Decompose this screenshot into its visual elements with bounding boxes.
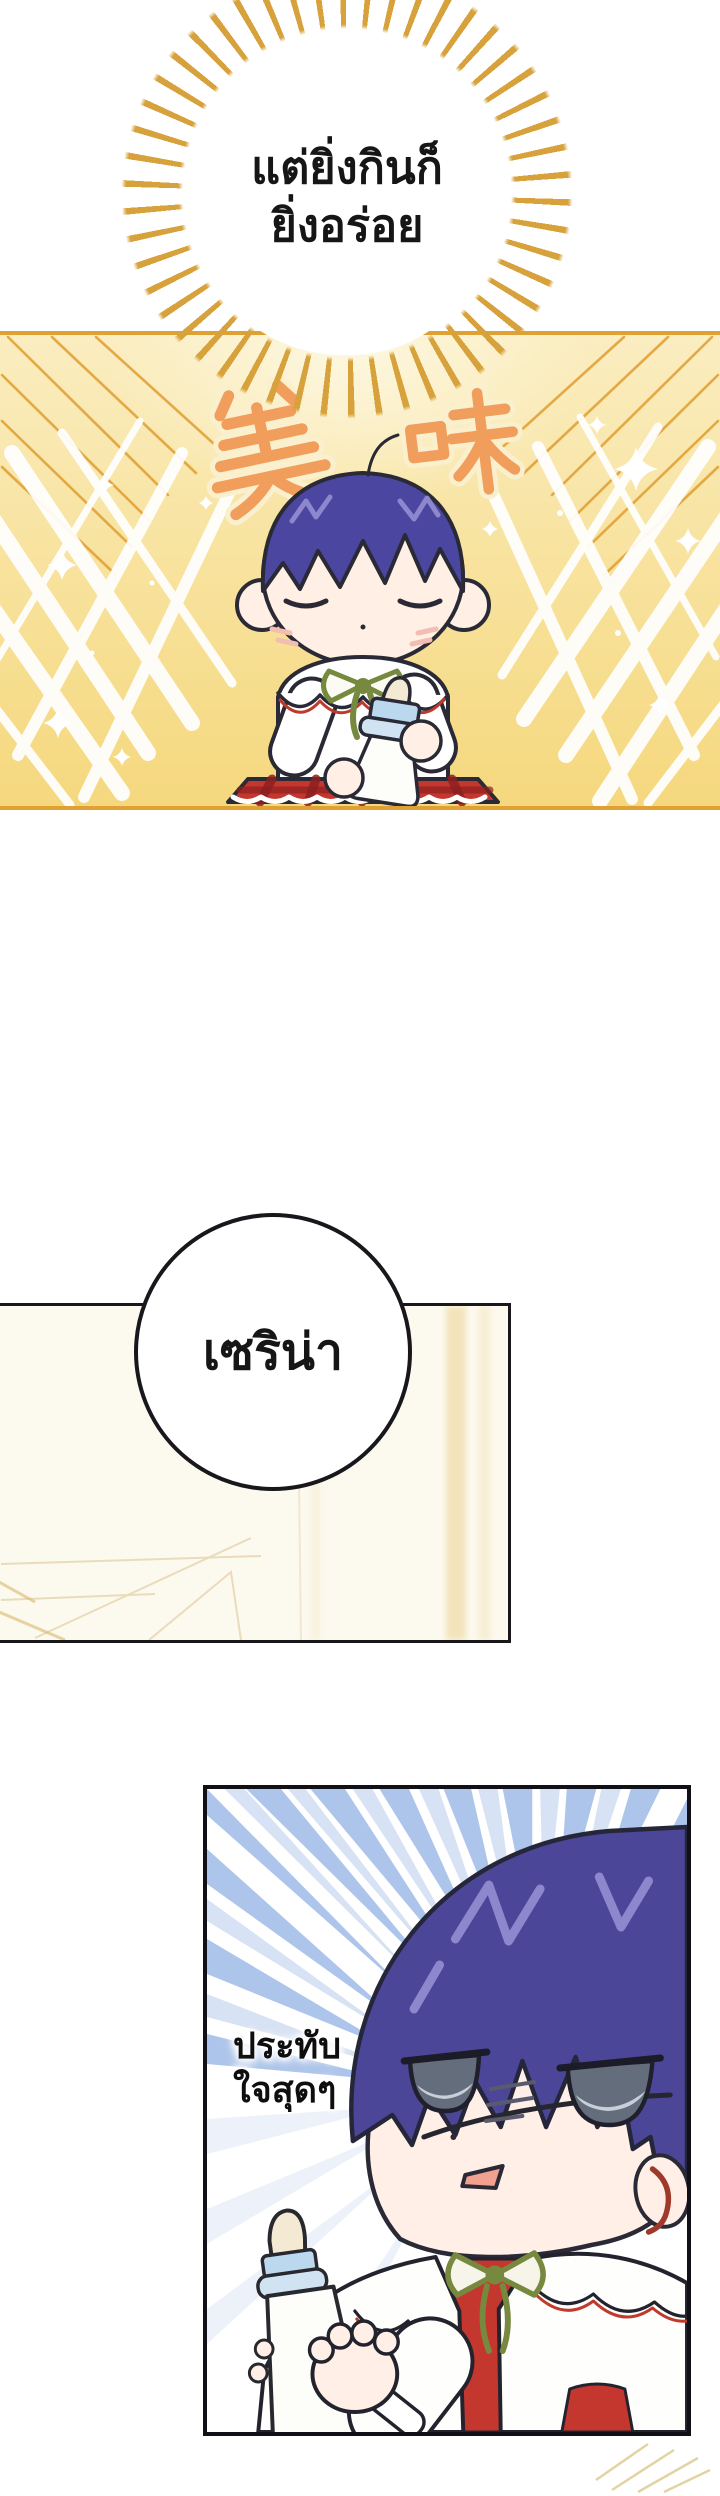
middle-speech-bubble: เซริน่า <box>134 1213 412 1491</box>
baby-nose <box>361 625 366 630</box>
caption-text: ประทับ ใจสุดๆ <box>233 2025 363 2113</box>
comic-page: แต่ยิ่งกินก็ ยิ่งอร่อย <box>0 0 720 2496</box>
footer-sparkle-icon <box>592 2438 714 2494</box>
faint-background-lines <box>1 1482 301 1640</box>
top-speech-line2: ยิ่งอร่อย <box>271 197 424 255</box>
top-speech-bubble: แต่ยิ่งกินก็ ยิ่งอร่อย <box>194 39 500 355</box>
baby-nose <box>450 2134 456 2140</box>
caption-line2: ใจสุดๆ <box>233 2069 363 2113</box>
baby-garment-red-lower <box>562 2384 633 2432</box>
baby-hand-left <box>325 759 363 797</box>
baby-thumb-bump2 <box>249 2364 267 2382</box>
top-speech-line1: แต่ยิ่งกินก็ <box>251 139 443 197</box>
corner-gold-lines <box>0 1582 65 1640</box>
bottom-panel-baby <box>242 1827 687 2432</box>
baby-thumb-bump1 <box>255 2340 273 2358</box>
middle-speech-text: เซริน่า <box>203 1320 343 1384</box>
bottom-panel: ประทับ ใจสุดๆ <box>203 1785 691 2436</box>
baby-ahoge <box>368 435 398 475</box>
baby-hand-right <box>401 721 441 761</box>
caption-line1: ประทับ <box>233 2025 363 2069</box>
